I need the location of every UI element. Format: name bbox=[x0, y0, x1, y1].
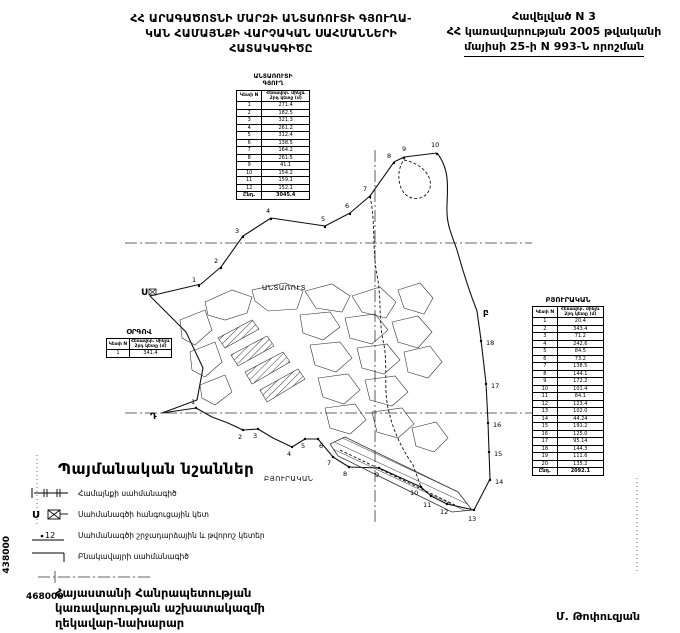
legend-label: Բնակավայրի սահմանագիծ bbox=[78, 552, 189, 561]
col-header-distance: Հեռավոր. մինչև 2րդ կետը (մ) bbox=[557, 307, 603, 318]
table-cell: 144.3 bbox=[557, 445, 603, 453]
table-row: 4242.6 bbox=[533, 340, 604, 348]
boundary-point: 8 bbox=[343, 466, 350, 478]
page-title: ՀՀ ԱՐԱԳԱԾՈՏՆԻ ՄԱՐԶԻ ԱՆՏԱՌՈՒՏԻ ԳՅՈՒՂԱ- ԿԱ… bbox=[118, 12, 424, 57]
point-number: 9 bbox=[402, 145, 406, 153]
table-row: 2343.4 bbox=[533, 325, 604, 333]
boundary-point: 14 bbox=[489, 478, 503, 486]
table-cell: 10 bbox=[533, 385, 558, 393]
table-cell: 73.2 bbox=[557, 355, 603, 363]
table-cell: 44.24 bbox=[557, 415, 603, 423]
table-row: 7138.5 bbox=[533, 363, 604, 371]
legend-item-settlement-boundary: Բնակավայրի սահմանագիծ bbox=[30, 549, 280, 563]
point-number: 1 bbox=[191, 398, 195, 406]
table-cell: 19 bbox=[533, 453, 558, 461]
point-number: 15 bbox=[494, 450, 502, 458]
table-row: 1271.4 bbox=[237, 102, 310, 110]
table-cell: 102.0 bbox=[557, 408, 603, 416]
table-cell: 8 bbox=[237, 154, 262, 162]
table-row: 18144.3 bbox=[533, 445, 604, 453]
village-label: ԱՆՏԱՌՈՒՏ bbox=[262, 284, 306, 292]
boundary-point: 7 bbox=[327, 456, 334, 467]
point-number: 4 bbox=[266, 207, 270, 215]
settlement-parcels bbox=[180, 283, 448, 452]
table-row: 3321.3 bbox=[237, 117, 310, 125]
col-header-distance: Հեռավոր. մինչև 2րդ կետը (մ) bbox=[129, 339, 171, 350]
table-cell: 191.2 bbox=[557, 423, 603, 431]
table-cell: 154.2 bbox=[262, 169, 310, 177]
distance-table-antarut: ԱՆՏԱՌՈՒՏԻ ԳՅՈՒՂ Կետի N Հեռավոր. մինչև 2ր… bbox=[236, 74, 310, 200]
table-cell: 7 bbox=[533, 363, 558, 371]
boundary-point: 7 bbox=[363, 185, 371, 198]
boundary-point: 6 bbox=[317, 438, 323, 450]
point-number: 10 bbox=[431, 141, 439, 149]
table-cell: 135.2 bbox=[557, 460, 603, 468]
point-number: 3 bbox=[235, 227, 239, 235]
table-cell: 4 bbox=[237, 124, 262, 132]
table-cell: 343.4 bbox=[557, 325, 603, 333]
annex-line: ՀՀ կառավարության 2005 թվականի bbox=[428, 25, 680, 40]
table-cell: 138.5 bbox=[557, 363, 603, 371]
table-cell: 3 bbox=[237, 117, 262, 125]
point-number: 5 bbox=[321, 215, 325, 223]
table-cell: 138.5 bbox=[262, 139, 310, 147]
table-cell: 321.3 bbox=[262, 117, 310, 125]
table-cell: 3 bbox=[533, 333, 558, 341]
table-row: 120.4 bbox=[533, 318, 604, 326]
table-cell: 312.4 bbox=[262, 132, 310, 140]
boundary-point: 4 bbox=[266, 207, 272, 220]
boundary-point: 3 bbox=[235, 227, 244, 238]
junction-letter: U bbox=[141, 288, 148, 298]
table-cell: 5 bbox=[533, 348, 558, 356]
table-cell: 4 bbox=[533, 340, 558, 348]
table-row: 1184.1 bbox=[533, 393, 604, 401]
table-cell: 341.4 bbox=[129, 350, 171, 358]
table-row: 19111.6 bbox=[533, 453, 604, 461]
svg-text:12: 12 bbox=[45, 531, 55, 540]
svg-text:U: U bbox=[32, 510, 40, 521]
table-cell: 242.6 bbox=[557, 340, 603, 348]
table-cell: 7 bbox=[237, 147, 262, 155]
table-cell: 84.1 bbox=[557, 393, 603, 401]
legend-title: Պայմանական նշաններ bbox=[58, 460, 280, 478]
point-number: 4 bbox=[287, 450, 291, 458]
boundary-point: 13 bbox=[468, 509, 476, 523]
table-title: ԲՅՈՒՐԱԿԱՆ bbox=[532, 296, 604, 304]
junction-letter: բ bbox=[483, 308, 489, 318]
table-cell: 10 bbox=[237, 169, 262, 177]
table-cell: 111.6 bbox=[557, 453, 603, 461]
map-sheet: ԱՆՏԱՌՈՒՏ ԲՅՈՒՐԱԿԱՆ 123456789101817161514… bbox=[0, 0, 680, 633]
annex-line: Հավելված N 3 bbox=[428, 10, 680, 25]
table-cell: 8 bbox=[533, 370, 558, 378]
point-number: 11 bbox=[423, 501, 431, 509]
table-row: 16125.0 bbox=[533, 430, 604, 438]
point-number: 9 bbox=[375, 471, 379, 479]
table-cell: 9 bbox=[533, 378, 558, 386]
table-cell: 18 bbox=[533, 445, 558, 453]
legend-label: Համայնքի սահմանագիծ bbox=[78, 489, 177, 498]
point-number: 7 bbox=[363, 185, 367, 193]
boundary-point: 1 bbox=[191, 398, 197, 409]
point-number: 7 bbox=[327, 459, 331, 467]
boundary-point: 15 bbox=[488, 450, 502, 458]
table-cell: 2 bbox=[533, 325, 558, 333]
distance-table-byurakan: ԲՅՈՒՐԱԿԱՆ Կետի N Հեռավոր. մինչև 2րդ կետը… bbox=[532, 296, 604, 476]
settlement-line-icon bbox=[30, 549, 70, 563]
legend-label: Սահմանագծի հանգուցային կետ bbox=[78, 510, 209, 519]
table-cell: 13 bbox=[533, 408, 558, 416]
table-cell: 17 bbox=[533, 438, 558, 446]
table-cell: 12 bbox=[533, 400, 558, 408]
table-cell: Ընդ. bbox=[237, 192, 262, 200]
boundary-point: 2 bbox=[238, 429, 244, 441]
signature-line: Հայաստանի Հանրապետության bbox=[55, 586, 265, 601]
table-cell: 11 bbox=[533, 393, 558, 401]
table-row: 5312.4 bbox=[237, 132, 310, 140]
point-number: 8 bbox=[343, 470, 347, 478]
table-row: 1341.4 bbox=[107, 350, 172, 358]
table-row: 371.2 bbox=[533, 333, 604, 341]
table-cell: 84.5 bbox=[557, 348, 603, 356]
boundary-point: 16 bbox=[487, 421, 501, 429]
table-total-row: Ընդ.2092.1 bbox=[533, 468, 604, 476]
table-cell: 12 bbox=[237, 184, 262, 192]
table-cell: 101.4 bbox=[557, 385, 603, 393]
table-cell: 172.2 bbox=[557, 378, 603, 386]
point-number: 18 bbox=[486, 339, 494, 347]
table-row: 10154.2 bbox=[237, 169, 310, 177]
point-number: 16 bbox=[493, 421, 501, 429]
boundary-point: 6 bbox=[345, 202, 351, 215]
table-cell: 11 bbox=[237, 177, 262, 185]
legend-item-community-boundary: Համայնքի սահմանագիծ bbox=[30, 486, 280, 500]
point-number: 6 bbox=[319, 442, 323, 450]
table-row: 8144.1 bbox=[533, 370, 604, 378]
table-cell: 261.2 bbox=[262, 124, 310, 132]
table-cell: 152.1 bbox=[262, 184, 310, 192]
table-cell: 1 bbox=[533, 318, 558, 326]
table-cell: 1 bbox=[107, 350, 130, 358]
table-row: 1444.24 bbox=[533, 415, 604, 423]
legend-item-junction-point: U Սահմանագծի հանգուցային կետ bbox=[30, 507, 280, 521]
table-row: 2182.5 bbox=[237, 109, 310, 117]
boundary-point: 2 bbox=[214, 257, 222, 269]
point-number: 5 bbox=[301, 442, 305, 450]
point-number: 12 bbox=[440, 508, 448, 516]
table-cell: Ընդ. bbox=[533, 468, 558, 476]
table-row: 11159.1 bbox=[237, 177, 310, 185]
point-number: 14 bbox=[495, 478, 503, 486]
signature-block: Հայաստանի Հանրապետության կառավարության ա… bbox=[55, 586, 265, 631]
table-cell: 20.4 bbox=[557, 318, 603, 326]
title-line: ԿԱՆ ՀԱՄԱՅՆՔԻ ՎԱՐՉԱԿԱՆ ՍԱՀՄԱՆՆԵՐԻ bbox=[118, 27, 424, 42]
table-total-row: Ընդ.3045.4 bbox=[237, 192, 310, 200]
boundary-point: 17 bbox=[485, 382, 499, 390]
table-title-line: ԳՅՈՒՂ bbox=[236, 81, 310, 88]
col-header-point: Կետի N bbox=[237, 90, 262, 101]
point-number: 2 bbox=[214, 257, 218, 265]
table-cell: 2 bbox=[237, 109, 262, 117]
col-header-point: Կետի N bbox=[533, 307, 558, 318]
table-row: 12152.1 bbox=[237, 184, 310, 192]
table-row: 20135.2 bbox=[533, 460, 604, 468]
table-title: ՕՐԳՈՎ bbox=[106, 328, 172, 336]
table-row: 673.2 bbox=[533, 355, 604, 363]
point-number: 17 bbox=[491, 382, 499, 390]
table-cell: 71.2 bbox=[557, 333, 603, 341]
junction-box-icon bbox=[149, 289, 156, 295]
title-line: ՀՀ ԱՐԱԳԱԾՈՏՆԻ ՄԱՐԶԻ ԱՆՏԱՌՈՒՏԻ ԳՅՈՒՂԱ- bbox=[118, 12, 424, 27]
legend-label: Սահմանագծի շրջադարձային և թվորոշ կետեր bbox=[78, 531, 265, 540]
table-row: 13102.0 bbox=[533, 408, 604, 416]
table-row: 941.1 bbox=[237, 162, 310, 170]
table-cell: 14 bbox=[533, 415, 558, 423]
boundary-point: 4 bbox=[287, 446, 293, 458]
legend: Պայմանական նշաններ Համայնքի սահմանագիծ U… bbox=[30, 460, 280, 570]
col-header-distance: Հեռավոր. մինչև 2րդ կետը (մ) bbox=[262, 90, 310, 101]
signature-line: ղեկավար-նախարար bbox=[55, 616, 265, 631]
boundary-point: 8 bbox=[387, 152, 395, 164]
table-cell: 95.14 bbox=[557, 438, 603, 446]
point-number: 1 bbox=[192, 276, 196, 284]
point-number: 8 bbox=[387, 152, 391, 160]
distance-table-orgov: ՕՐԳՈՎ Կետի N Հեռավոր. մինչև 2րդ կետը (մ)… bbox=[106, 328, 172, 358]
point-number: 10 bbox=[410, 489, 418, 497]
point-number: 2 bbox=[238, 433, 242, 441]
point-number: 6 bbox=[345, 202, 349, 210]
table-cell: 123.4 bbox=[557, 400, 603, 408]
point-number: 3 bbox=[253, 432, 257, 440]
table-row: 12123.4 bbox=[533, 400, 604, 408]
turning-point-icon: 12 bbox=[30, 528, 70, 542]
signature-line: կառավարության աշխատակազմի bbox=[55, 601, 265, 616]
table-cell: 3045.4 bbox=[262, 192, 310, 200]
table-cell: 1 bbox=[237, 102, 262, 110]
table-cell: 271.4 bbox=[262, 102, 310, 110]
table-row: 9172.2 bbox=[533, 378, 604, 386]
annex-line-underlined: մայիսի 25-ի N 993-Ն որոշման bbox=[464, 40, 644, 57]
table-cell: 261.5 bbox=[262, 154, 310, 162]
point-number: 13 bbox=[468, 515, 476, 523]
table-cell: 15 bbox=[533, 423, 558, 431]
junction-point-icon: U bbox=[30, 507, 70, 521]
grid-coordinate-vertical: 438000 bbox=[2, 536, 12, 574]
table-cell: 16 bbox=[533, 430, 558, 438]
signatory-name: Մ. Թոփուզյան bbox=[556, 610, 640, 623]
table-cell: 2092.1 bbox=[557, 468, 603, 476]
table-cell: 125.0 bbox=[557, 430, 603, 438]
community-boundary bbox=[149, 153, 490, 510]
table-row: 584.5 bbox=[533, 348, 604, 356]
table-row: 1795.14 bbox=[533, 438, 604, 446]
annex-note: Հավելված N 3 ՀՀ կառավարության 2005 թվակա… bbox=[428, 10, 680, 57]
table-row: 7164.2 bbox=[237, 147, 310, 155]
table-row: 15191.2 bbox=[533, 423, 604, 431]
table-cell: 20 bbox=[533, 460, 558, 468]
table-cell: 159.1 bbox=[262, 177, 310, 185]
junction-letter: Դ bbox=[150, 412, 157, 422]
table-cell: 5 bbox=[237, 132, 262, 140]
table-cell: 6 bbox=[533, 355, 558, 363]
table-cell: 41.1 bbox=[262, 162, 310, 170]
table-cell: 6 bbox=[237, 139, 262, 147]
table-row: 4261.2 bbox=[237, 124, 310, 132]
table-cell: 9 bbox=[237, 162, 262, 170]
table-row: 6138.5 bbox=[237, 139, 310, 147]
table-cell: 182.5 bbox=[262, 109, 310, 117]
table-row: 8261.5 bbox=[237, 154, 310, 162]
col-header-point: Կետի N bbox=[107, 339, 130, 350]
title-line: ՀԱՏԱԿԱԳԻԾԸ bbox=[118, 42, 424, 57]
table-cell: 164.2 bbox=[262, 147, 310, 155]
legend-item-turning-point: 12 Սահմանագծի շրջադարձային և թվորոշ կետե… bbox=[30, 528, 280, 542]
table-cell: 144.1 bbox=[557, 370, 603, 378]
table-row: 10101.4 bbox=[533, 385, 604, 393]
boundary-line-icon bbox=[30, 486, 70, 500]
